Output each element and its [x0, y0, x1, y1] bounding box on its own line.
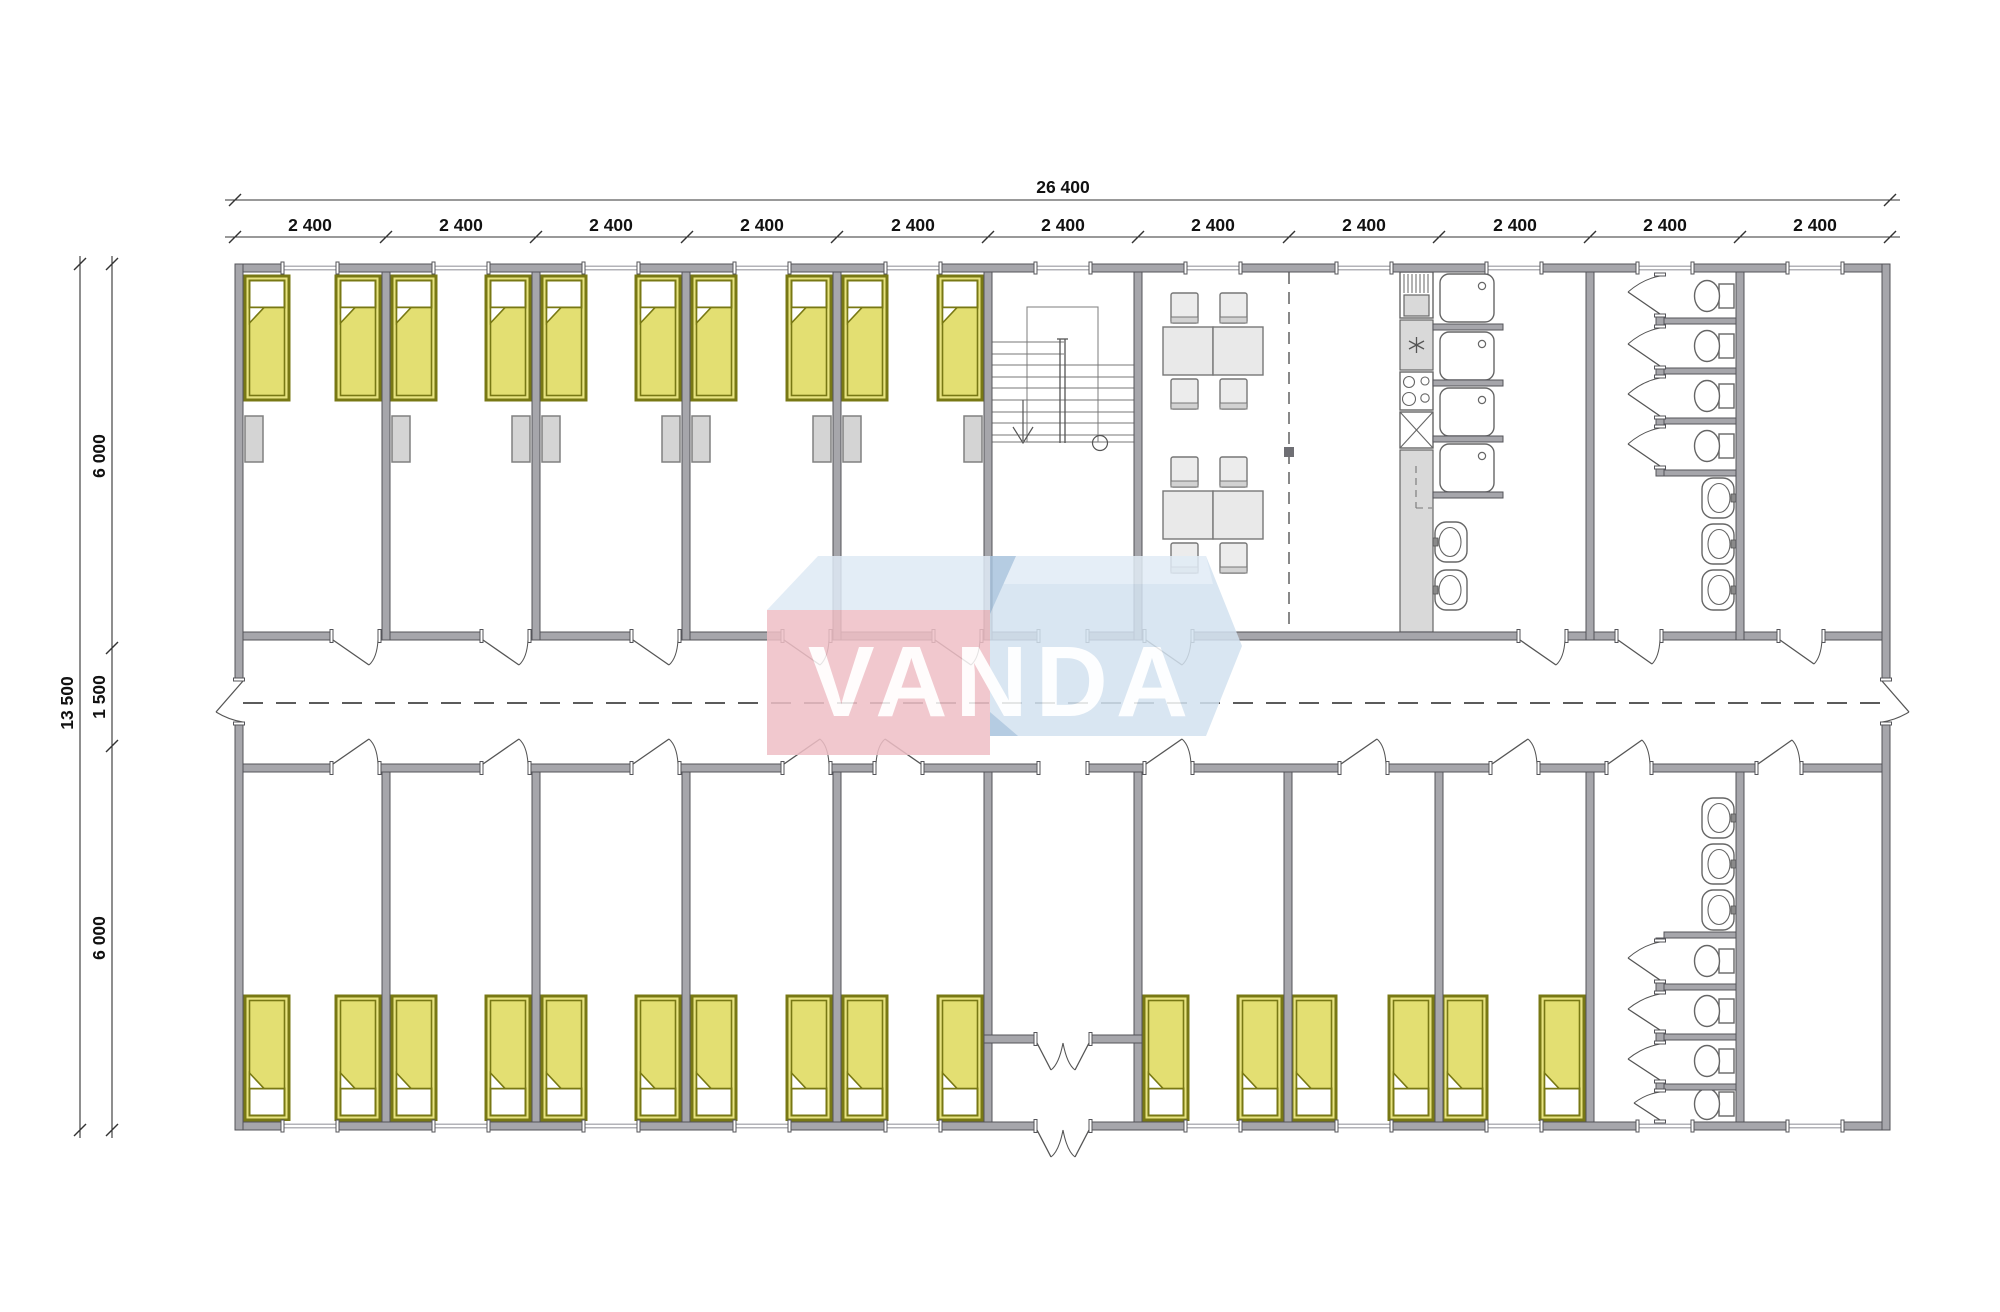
chair: [1171, 293, 1198, 323]
window: [1335, 1120, 1393, 1132]
overall-height-label: 13 500: [57, 676, 77, 730]
toilet: [1695, 381, 1735, 412]
bed: [787, 996, 831, 1120]
window: [1034, 262, 1092, 274]
chair: [1171, 379, 1198, 409]
toilets-top: [1695, 281, 1737, 611]
wash-basin: [1433, 570, 1467, 610]
top-row-bedrooms: [245, 276, 982, 462]
wash-basin: [1702, 798, 1736, 838]
stall-door: [1628, 1041, 1666, 1083]
module-dim-label: 2 400: [589, 215, 633, 235]
entrance-double-door: [1034, 1120, 1092, 1158]
floor-plan-drawing: 26 400 2 400 2 400 2 400 2 400 2 400 2 4…: [0, 0, 2000, 1312]
bed: [245, 996, 289, 1120]
bed: [843, 276, 887, 400]
door: [1777, 630, 1825, 665]
stall-door: [1628, 273, 1666, 317]
vestibule-opening: [1037, 762, 1089, 775]
toilet: [1695, 431, 1735, 462]
exterior-wall-left: [235, 264, 243, 680]
window: [281, 262, 339, 274]
exit-door-left: [216, 678, 245, 725]
wash-basin: [1702, 478, 1736, 518]
dining-table: [1213, 327, 1263, 375]
window: [432, 1120, 490, 1132]
wardrobe: [392, 416, 410, 462]
bed: [938, 996, 982, 1120]
window: [432, 262, 490, 274]
shower: [1440, 332, 1494, 380]
door: [480, 630, 531, 666]
bed: [392, 996, 436, 1120]
segment-dim-label: 6 000: [89, 916, 109, 960]
window: [1485, 1120, 1543, 1132]
bed: [1389, 996, 1433, 1120]
division-marker: [1284, 447, 1294, 457]
module-dim-label: 2 400: [1342, 215, 1386, 235]
vanda-watermark: VANDA: [767, 556, 1242, 755]
chair: [1171, 457, 1198, 487]
bed: [692, 276, 736, 400]
window: [1786, 262, 1844, 274]
module-dim-label: 2 400: [1191, 215, 1235, 235]
door: [1517, 630, 1568, 666]
bed: [542, 276, 586, 400]
door: [1615, 630, 1663, 665]
window: [1485, 262, 1543, 274]
toilet: [1695, 1046, 1735, 1077]
door: [1489, 739, 1540, 775]
bed: [486, 276, 530, 400]
wardrobe: [512, 416, 530, 462]
wardrobe: [692, 416, 710, 462]
chair: [1220, 543, 1247, 573]
door: [1338, 739, 1389, 775]
chair: [1220, 457, 1247, 487]
wardrobe: [964, 416, 982, 462]
exterior-wall-right: [1882, 264, 1890, 680]
window: [884, 1120, 942, 1132]
segment-dim-label: 6 000: [89, 434, 109, 478]
door: [1143, 739, 1194, 775]
module-dim-label: 2 400: [439, 215, 483, 235]
bed: [245, 276, 289, 400]
stall-door: [1634, 1089, 1666, 1123]
shower: [1440, 388, 1494, 436]
stall-door: [1628, 375, 1666, 419]
door: [1755, 740, 1803, 775]
wash-basin: [1433, 522, 1467, 562]
chair: [1220, 379, 1247, 409]
window: [582, 262, 640, 274]
stall-door: [1628, 939, 1666, 983]
wardrobe: [662, 416, 680, 462]
door: [630, 739, 681, 775]
bed: [336, 996, 380, 1120]
toilet: [1695, 1089, 1735, 1120]
bed: [938, 276, 982, 400]
toilet: [1695, 996, 1735, 1027]
wash-basin: [1702, 570, 1736, 610]
module-dim-label: 2 400: [1493, 215, 1537, 235]
bed: [1144, 996, 1188, 1120]
door: [330, 630, 381, 666]
window: [1335, 262, 1393, 274]
bed: [392, 276, 436, 400]
door: [330, 739, 381, 775]
window: [884, 262, 942, 274]
toilets-bottom: [1695, 798, 1737, 1120]
module-dim-label: 2 400: [1041, 215, 1085, 235]
floor-plan-page: 26 400 2 400 2 400 2 400 2 400 2 400 2 4…: [0, 0, 2000, 1312]
stall-door: [1628, 325, 1666, 369]
stair-newel-post: [1093, 436, 1108, 451]
bed: [1292, 996, 1336, 1120]
window: [1184, 1120, 1242, 1132]
wash-basin: [1702, 524, 1736, 564]
door: [1605, 740, 1653, 775]
stall-door: [1628, 425, 1666, 469]
bed: [542, 996, 586, 1120]
bed: [336, 276, 380, 400]
bed: [787, 276, 831, 400]
kitchen-counter: [1400, 450, 1433, 632]
exit-door-right: [1881, 678, 1910, 725]
window: [281, 1120, 339, 1132]
toilet: [1695, 281, 1735, 312]
door: [630, 630, 681, 666]
module-dim-label: 2 400: [1793, 215, 1837, 235]
bed: [1238, 996, 1282, 1120]
wash-basin: [1702, 844, 1736, 884]
wash-basin: [1702, 890, 1736, 930]
shower: [1440, 274, 1494, 322]
bed: [1540, 996, 1584, 1120]
wardrobe: [843, 416, 861, 462]
entrance-vestibule-doors: [1034, 1033, 1092, 1158]
kitchen: [1400, 272, 1433, 632]
double-door: [1034, 1033, 1092, 1071]
bed: [636, 996, 680, 1120]
toilet: [1695, 946, 1735, 977]
staircase: [992, 307, 1136, 451]
module-dim-label: 2 400: [1643, 215, 1687, 235]
window: [733, 1120, 791, 1132]
exterior-wall-left: [235, 722, 243, 1130]
logo-body-top-band: [990, 556, 1213, 584]
window: [1184, 262, 1242, 274]
window: [1786, 1120, 1844, 1132]
dimensions-top: 26 400 2 400 2 400 2 400 2 400 2 400 2 4…: [225, 177, 1900, 243]
bed: [692, 996, 736, 1120]
module-dim-label: 2 400: [740, 215, 784, 235]
dining-table: [1163, 491, 1213, 539]
bed: [486, 996, 530, 1120]
module-dim-label: 2 400: [891, 215, 935, 235]
bottom-row-bedrooms: [245, 996, 1584, 1120]
module-dim-label: 2 400: [288, 215, 332, 235]
toilet-stall-doors: [1628, 273, 1666, 1123]
stall-door: [1628, 991, 1666, 1033]
exterior-wall-right: [1882, 722, 1890, 1130]
logo-text: VANDA: [808, 626, 1196, 738]
bed: [636, 276, 680, 400]
overall-width-label: 26 400: [1036, 177, 1090, 197]
shower-room: [1433, 274, 1503, 610]
shower: [1440, 444, 1494, 492]
bed: [843, 996, 887, 1120]
window: [1636, 262, 1694, 274]
window: [733, 262, 791, 274]
toilet: [1695, 331, 1735, 362]
dining-table: [1213, 491, 1263, 539]
dimensions-left: 13 500 6 000 1 500 6 000: [57, 256, 118, 1138]
chair: [1220, 293, 1247, 323]
wardrobe: [813, 416, 831, 462]
bed: [1443, 996, 1487, 1120]
door: [480, 739, 531, 775]
window: [582, 1120, 640, 1132]
segment-dim-label: 1 500: [89, 675, 109, 719]
dining-table: [1163, 327, 1213, 375]
wardrobe: [245, 416, 263, 462]
wardrobe: [542, 416, 560, 462]
